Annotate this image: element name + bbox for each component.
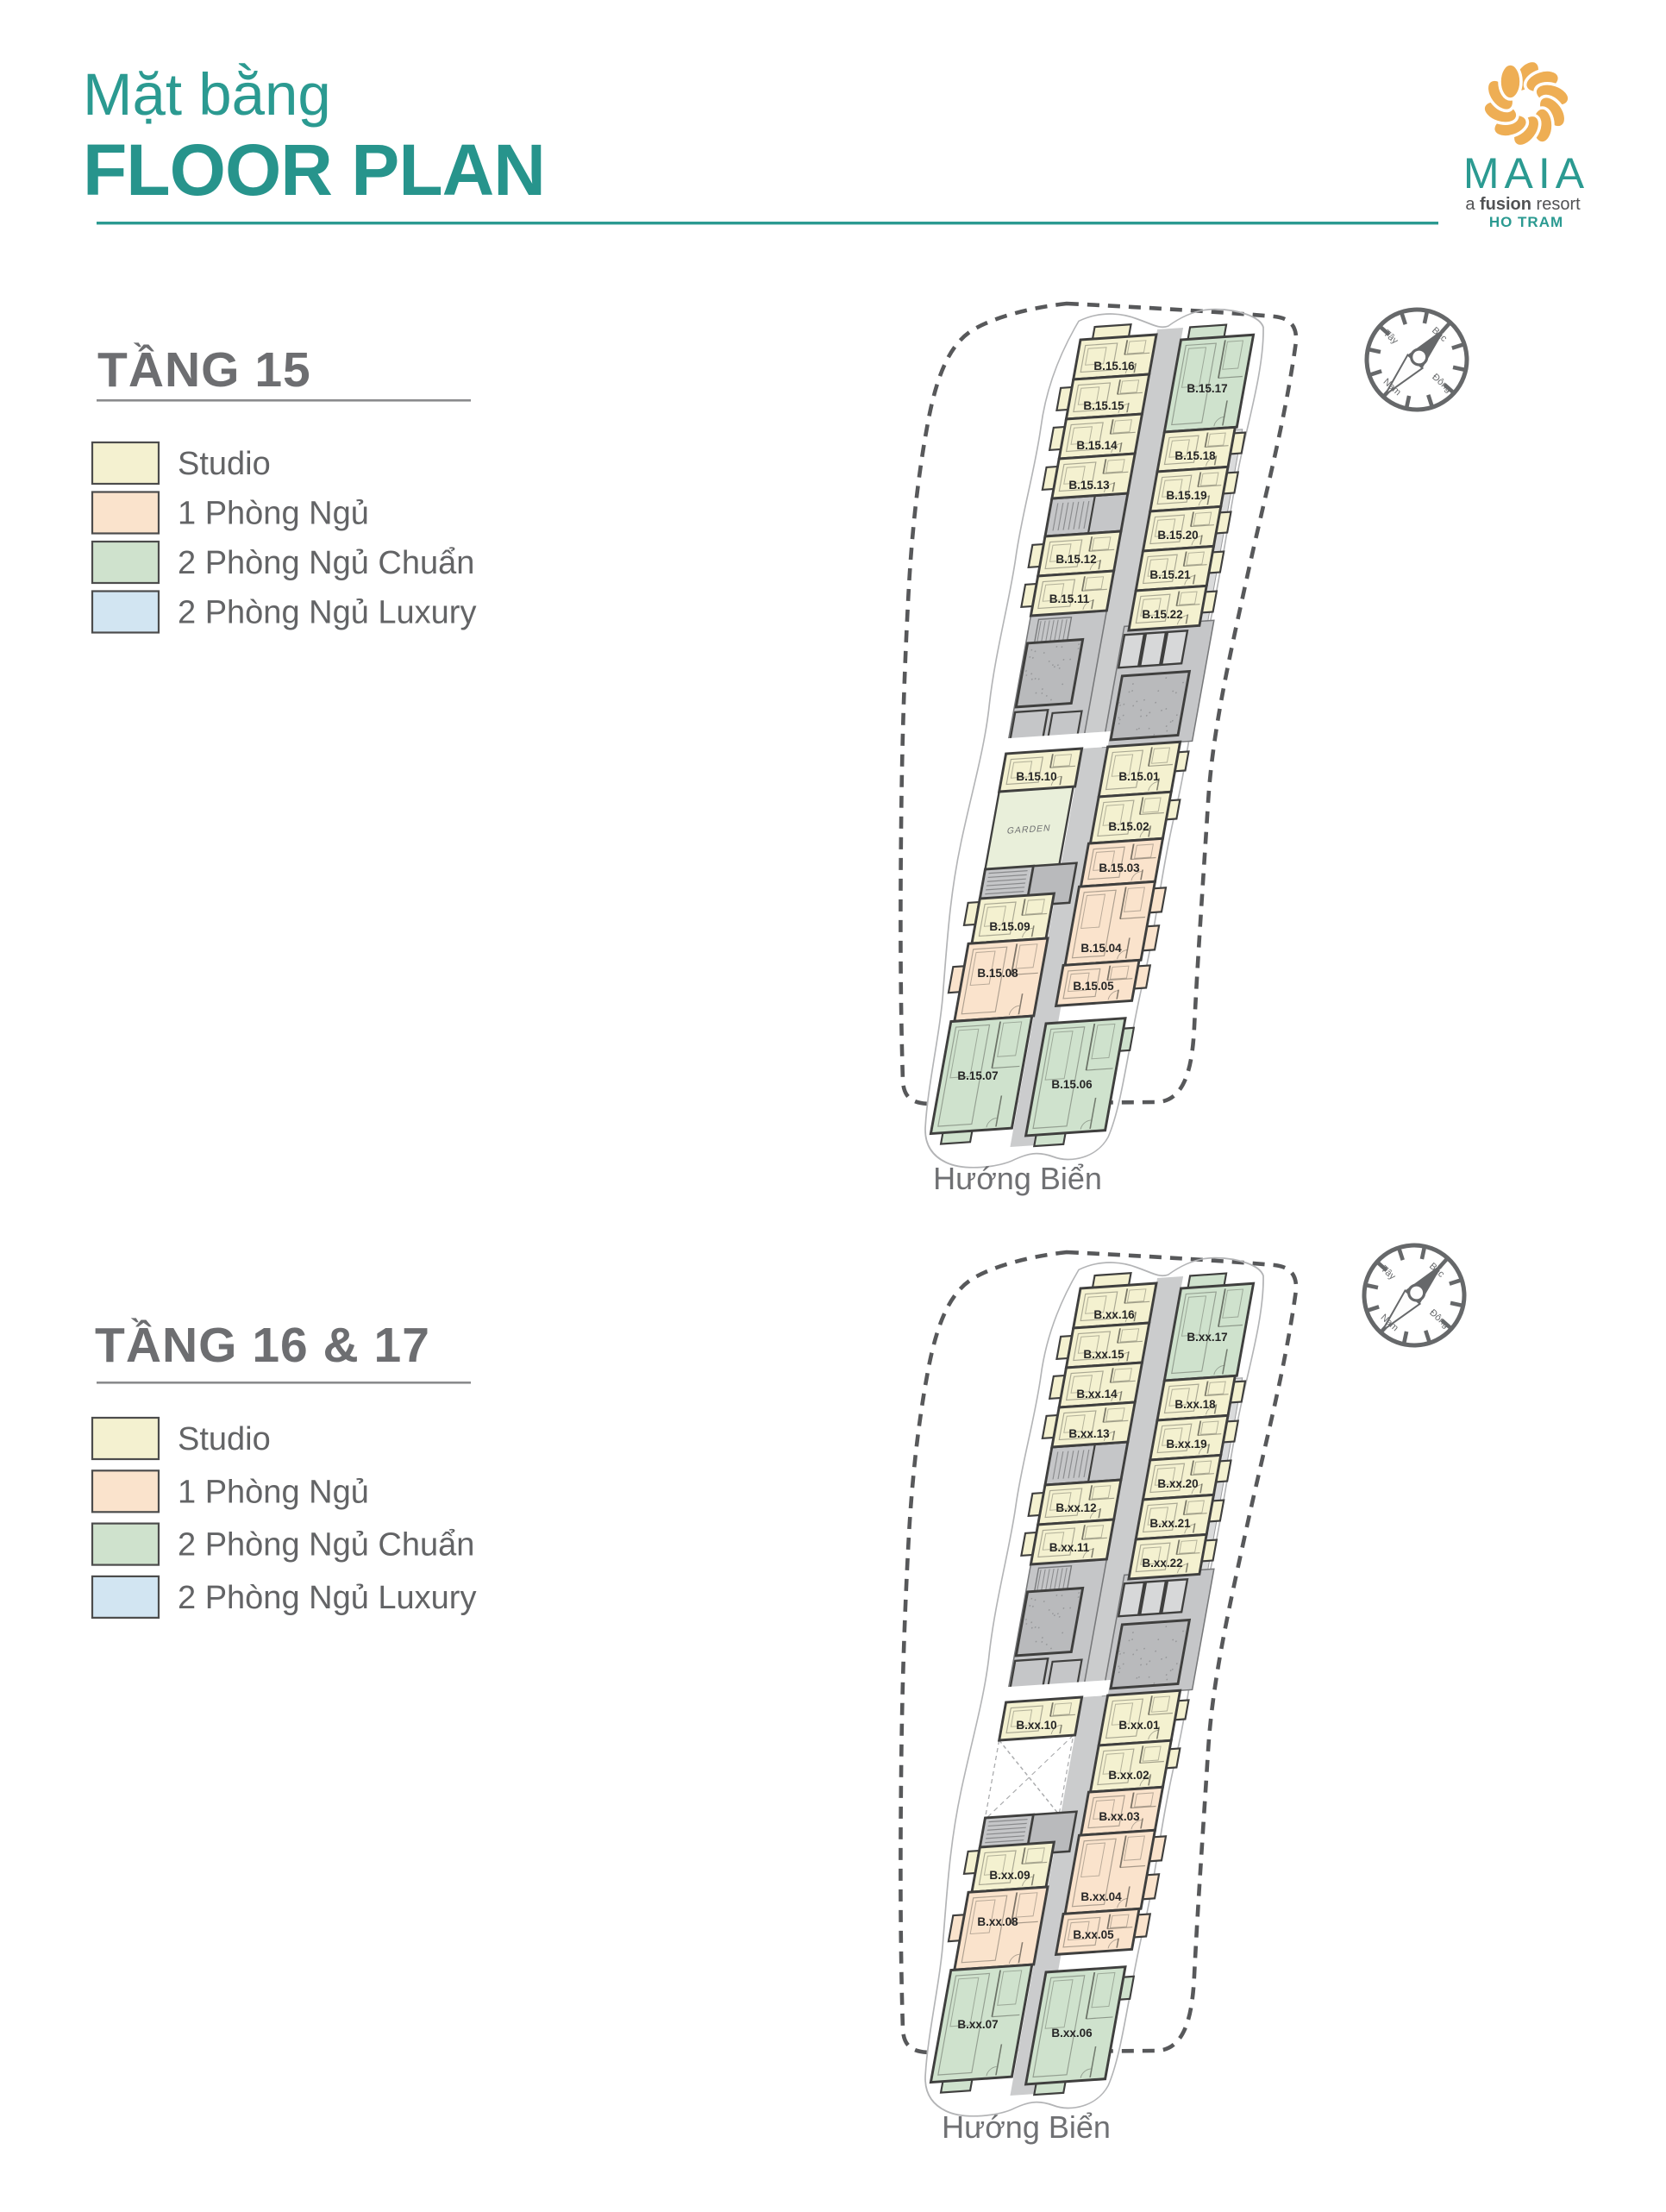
svg-text:Hướng Biển: Hướng Biển: [942, 2109, 1111, 2145]
svg-text:B.xx.13: B.xx.13: [1068, 1427, 1110, 1440]
svg-text:B.xx.04: B.xx.04: [1080, 1890, 1122, 1903]
svg-text:HO TRAM: HO TRAM: [1489, 214, 1563, 230]
svg-text:Studio: Studio: [178, 446, 271, 482]
svg-text:B.15.16: B.15.16: [1093, 360, 1135, 373]
svg-text:B.15.13: B.15.13: [1068, 479, 1110, 492]
svg-text:B.xx.01: B.xx.01: [1118, 1719, 1160, 1732]
svg-text:2 Phòng Ngủ Chuẩn: 2 Phòng Ngủ Chuẩn: [178, 545, 474, 581]
svg-text:B.15.14: B.15.14: [1076, 439, 1118, 452]
svg-text:B.xx.06: B.xx.06: [1051, 2027, 1093, 2040]
svg-text:Mặt bằng: Mặt bằng: [83, 61, 331, 128]
svg-text:B.xx.20: B.xx.20: [1157, 1477, 1198, 1490]
svg-text:B.xx.11: B.xx.11: [1049, 1541, 1090, 1554]
svg-text:B.15.04: B.15.04: [1080, 942, 1122, 955]
svg-text:B.15.11: B.15.11: [1049, 592, 1090, 605]
svg-text:B.15.22: B.15.22: [1142, 608, 1182, 621]
svg-text:B.15.15: B.15.15: [1083, 399, 1124, 412]
svg-text:B.15.10: B.15.10: [1016, 770, 1056, 783]
svg-text:B.15.03: B.15.03: [1099, 862, 1140, 874]
svg-text:B.15.17: B.15.17: [1187, 382, 1227, 395]
svg-text:B.xx.05: B.xx.05: [1073, 1928, 1114, 1941]
svg-text:B.xx.08: B.xx.08: [977, 1915, 1018, 1928]
svg-text:FLOOR PLAN: FLOOR PLAN: [83, 129, 545, 210]
svg-text:B.15.09: B.15.09: [989, 920, 1030, 933]
svg-text:B.xx.14: B.xx.14: [1076, 1388, 1118, 1401]
svg-text:B.15.05: B.15.05: [1073, 980, 1114, 993]
svg-text:B.xx.12: B.xx.12: [1055, 1501, 1096, 1514]
svg-text:B.15.12: B.15.12: [1055, 553, 1096, 566]
svg-text:B.xx.10: B.xx.10: [1016, 1719, 1056, 1732]
svg-text:B.15.01: B.15.01: [1118, 770, 1160, 783]
svg-text:B.15.21: B.15.21: [1149, 568, 1191, 581]
svg-text:B.15.20: B.15.20: [1157, 529, 1198, 542]
svg-text:TẦNG 16 & 17: TẦNG 16 & 17: [95, 1317, 430, 1373]
svg-text:B.xx.09: B.xx.09: [989, 1869, 1030, 1882]
svg-text:B.15.18: B.15.18: [1174, 449, 1216, 462]
svg-text:B.15.07: B.15.07: [957, 1069, 998, 1082]
svg-text:1 Phòng Ngủ: 1 Phòng Ngủ: [178, 496, 369, 532]
svg-text:B.xx.17: B.xx.17: [1187, 1331, 1227, 1344]
svg-text:B.15.08: B.15.08: [977, 967, 1018, 980]
svg-text:B.15.19: B.15.19: [1166, 489, 1206, 502]
svg-text:B.xx.02: B.xx.02: [1108, 1769, 1149, 1782]
svg-text:1 Phòng Ngủ: 1 Phòng Ngủ: [178, 1474, 369, 1510]
svg-text:B.xx.22: B.xx.22: [1142, 1557, 1182, 1570]
svg-text:B.xx.07: B.xx.07: [957, 2018, 998, 2031]
svg-text:TẦNG 15: TẦNG 15: [97, 342, 311, 398]
svg-text:B.xx.15: B.xx.15: [1083, 1348, 1124, 1361]
svg-text:B.xx.21: B.xx.21: [1149, 1517, 1191, 1530]
svg-text:B.xx.16: B.xx.16: [1093, 1308, 1135, 1321]
svg-text:B.xx.18: B.xx.18: [1174, 1398, 1216, 1411]
svg-text:Hướng Biển: Hướng Biển: [933, 1161, 1102, 1196]
svg-text:MAIA: MAIA: [1463, 149, 1589, 197]
svg-text:Studio: Studio: [178, 1421, 271, 1457]
svg-text:B.xx.03: B.xx.03: [1099, 1810, 1140, 1823]
svg-text:2 Phòng Ngủ Luxury: 2 Phòng Ngủ Luxury: [178, 1580, 476, 1616]
svg-text:B.15.02: B.15.02: [1108, 820, 1149, 833]
svg-text:2 Phòng Ngủ Luxury: 2 Phòng Ngủ Luxury: [178, 595, 476, 631]
svg-text:B.xx.19: B.xx.19: [1166, 1438, 1206, 1451]
svg-text:a fusion resort: a fusion resort: [1465, 195, 1581, 214]
svg-text:2 Phòng Ngủ Chuẩn: 2 Phòng Ngủ Chuẩn: [178, 1527, 474, 1563]
svg-text:B.15.06: B.15.06: [1051, 1078, 1093, 1091]
